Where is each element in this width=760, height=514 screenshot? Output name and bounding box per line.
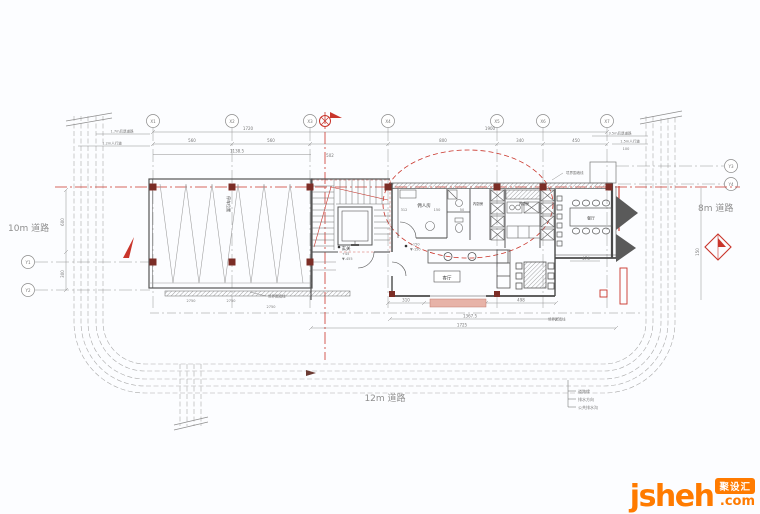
grid-label: Y3 (728, 164, 734, 169)
porch-level-1: +150 (410, 243, 420, 247)
dim-300: 300 (60, 270, 65, 278)
dim-560a: 560 (188, 138, 196, 143)
dim-100: 100 (623, 147, 630, 151)
dimension-lines (64, 130, 701, 330)
grid-label: X7 (604, 119, 610, 124)
dim-1900: 1900 (485, 126, 496, 131)
dim-498: 498 (517, 298, 525, 303)
dim-312: 312 (401, 208, 408, 212)
setback-right-2: 1.5m人行道 (620, 139, 640, 144)
dim-50: 50 (460, 208, 464, 212)
north-arrow-icon (705, 234, 731, 260)
grid-label: X3 (307, 119, 313, 124)
dim-1725: 1725 (457, 323, 468, 328)
dim-600: 600 (60, 218, 65, 226)
dim-800: 800 (439, 138, 447, 143)
room-label-inner-kitchen-1: 内厨房 (473, 201, 484, 206)
grid-label: X4 (385, 119, 391, 124)
road-break-marks (66, 111, 682, 430)
grid-label: X2 (229, 119, 235, 124)
dim-560b: 560 (267, 138, 275, 143)
jsheh-logo[interactable]: jsheh 聚设汇 .com (630, 478, 755, 508)
road-label-right: 8m 道路 (698, 202, 733, 214)
fixtures (400, 190, 554, 240)
porch-level-2: ▼-150 (410, 248, 421, 252)
dining-furniture (557, 196, 612, 246)
road-label-left: 10m 道路 (8, 222, 49, 234)
note-boundary-wall-2: 境界围墙线 (268, 294, 286, 299)
level-marker-dot (405, 245, 408, 248)
red-arrow-marker (123, 237, 134, 258)
drawing-canvas: X1 X2 X3 X4 X5 X6 X7 Y1 Y2 Y3 Y4 (0, 0, 760, 514)
dim-1720: 1720 (243, 126, 254, 131)
living-kitchen (428, 250, 554, 289)
level-marker-dot (338, 246, 341, 249)
grid-label: X1 (150, 119, 156, 124)
dim-340: 340 (516, 138, 524, 143)
room-label-entry: 玄关 (342, 245, 351, 252)
setback-left-1: 1.7m后退道路 (111, 129, 134, 134)
jsheh-tld: .com (715, 495, 755, 508)
legend-item-2: 排水方向 (578, 396, 594, 402)
room-label-inner-kitchen-2: 内厨房 (519, 201, 530, 206)
road-label-bottom: 12m 道路 (364, 392, 405, 404)
grid-label: X5 (494, 119, 500, 124)
stair-core (311, 179, 390, 300)
dim-474: 474 (582, 256, 590, 261)
grid-label: Y1 (25, 260, 31, 265)
survey-marker-icon (320, 112, 343, 127)
entry-level-1: +45 (342, 252, 349, 256)
boundary-wall (165, 291, 350, 296)
dim-bay-1: 2750 (187, 299, 196, 303)
entry-level-2: ▼-455 (342, 257, 353, 261)
legend-item-3: 公共排水沟 (578, 404, 598, 410)
legend-bracket (568, 380, 576, 407)
grid-label: Y4 (728, 182, 734, 187)
room-label-parking: 停车位置 (226, 196, 232, 212)
dim-150b: 150 (434, 208, 441, 212)
site-road-lines (74, 116, 675, 426)
dim-bay-3: 2750 (267, 305, 276, 309)
dim-150: 150 (695, 248, 700, 256)
room-label-maid: 佣人房 (417, 202, 431, 209)
dim-bay-2: 2750 (227, 299, 236, 303)
grid-label: X6 (540, 119, 546, 124)
red-reference-lines (55, 112, 740, 360)
dim-1367: 1367.5 (463, 314, 477, 319)
jsheh-wordmark: jsheh (630, 485, 714, 508)
dim-310: 310 (402, 298, 410, 303)
grid-label: Y2 (25, 288, 31, 293)
dim-1138: 1138.5 (230, 149, 244, 154)
floor-plan-svg: X1 X2 X3 X4 X5 X6 X7 Y1 Y2 Y3 Y4 (0, 0, 760, 514)
room-label-dining: 餐厅 (587, 215, 595, 221)
porch-mat (430, 299, 486, 307)
dim-502: 502 (326, 153, 334, 158)
note-boundary-wall-1: 境界围墙线 (566, 170, 584, 175)
setback-right-1: 3.5m后退道路 (609, 131, 632, 136)
note-boundary-wall-3: 境界围墙线 (548, 317, 566, 322)
jsheh-badge: 聚设汇 (715, 478, 755, 494)
room-label-living: 客厅 (443, 275, 452, 282)
dim-450: 450 (572, 138, 580, 143)
legend-item-1: 道路缘 (578, 388, 590, 394)
setback-left-2: 1.2m人行道 (102, 141, 122, 146)
